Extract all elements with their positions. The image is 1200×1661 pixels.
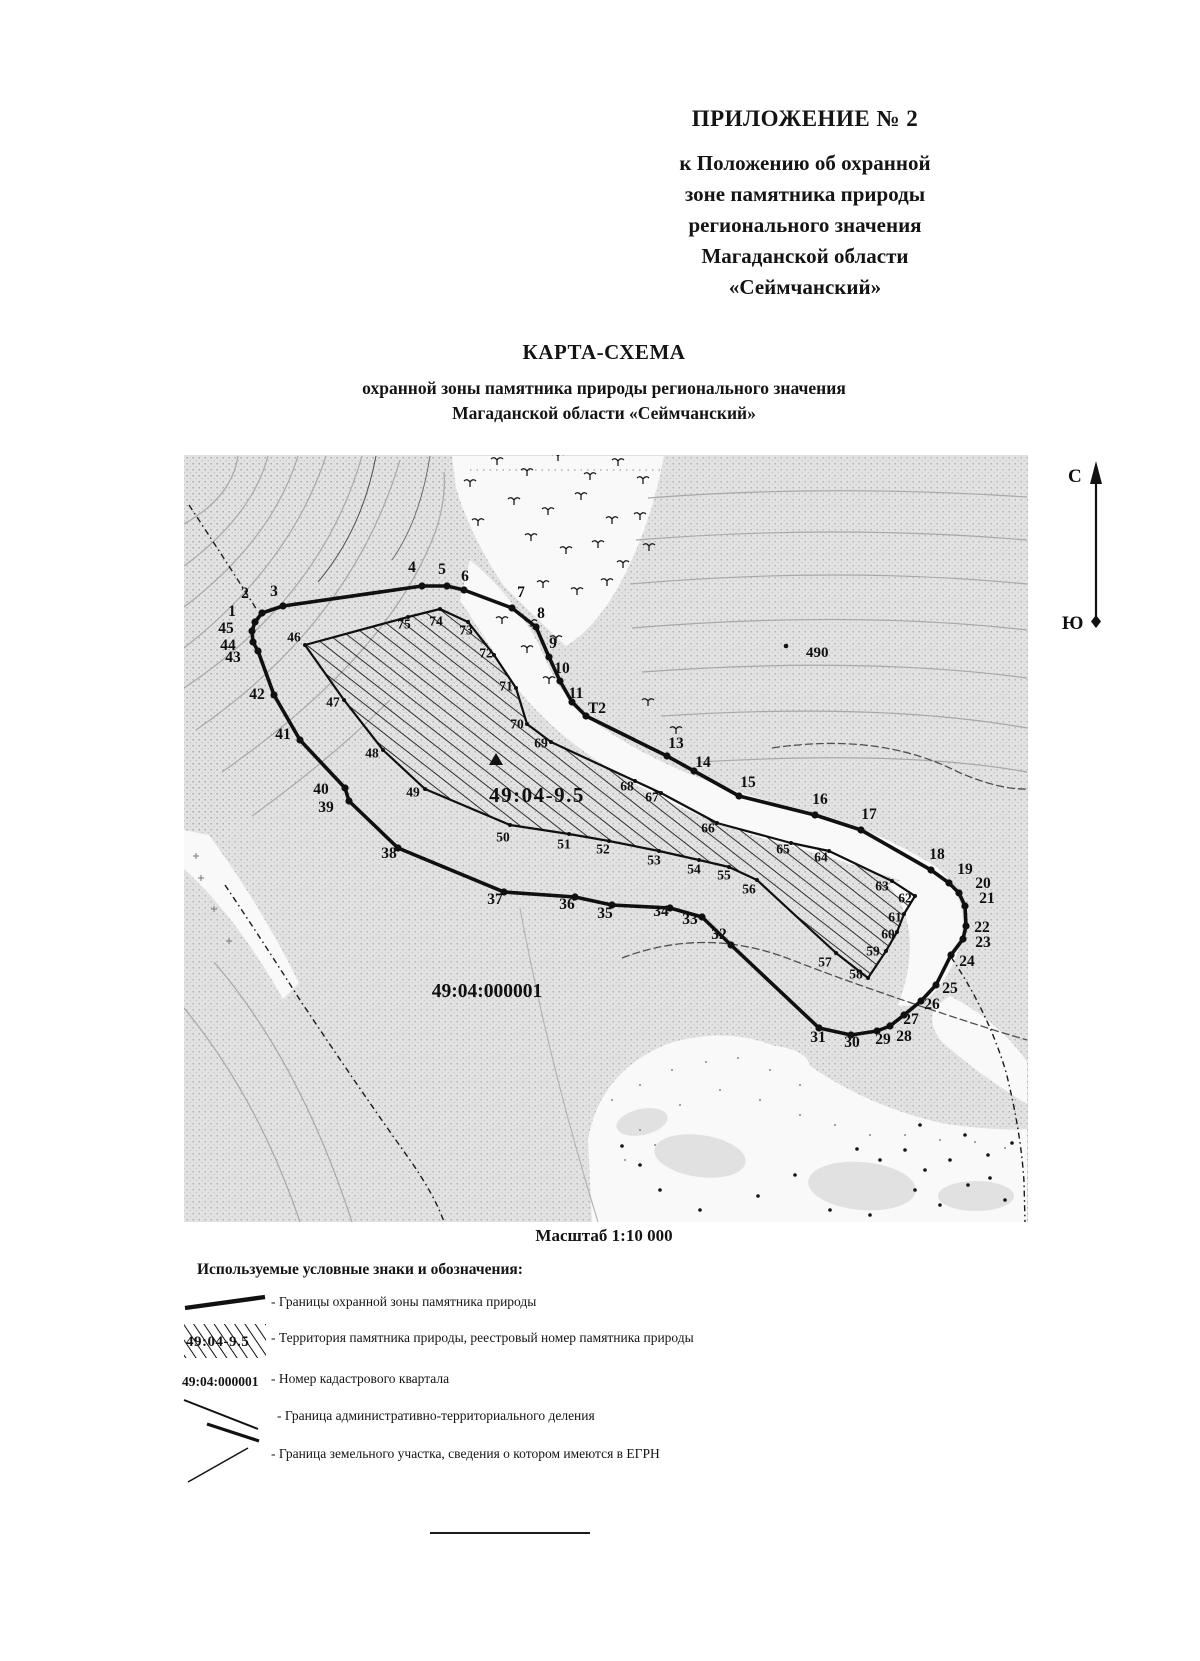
- boundary-vertex-dot: [735, 792, 742, 799]
- boundary-point-label: 11: [569, 685, 584, 702]
- territory-vertex-dot: [381, 748, 385, 752]
- boundary-vertex-dot: [947, 951, 954, 958]
- territory-point-label: 52: [596, 842, 610, 857]
- territory-point-label: 62: [898, 891, 912, 906]
- boundary-vertex-dot: [857, 826, 864, 833]
- territory-point-label: 70: [510, 717, 524, 732]
- territory-vertex-dot: [884, 949, 888, 953]
- territory-vertex-dot: [303, 643, 307, 647]
- boundary-point-label: 41: [275, 726, 291, 743]
- footer-rule: [430, 1532, 590, 1534]
- boundary-point-label: 25: [942, 980, 958, 997]
- boundary-vertex-dot: [251, 618, 258, 625]
- boundary-vertex-dot: [254, 647, 261, 654]
- south-diamond-icon: [1091, 615, 1101, 628]
- boundary-point-label: 28: [896, 1028, 912, 1045]
- scale-label: Масштаб 1:10 000: [180, 1226, 1028, 1246]
- legend-item-label: - Границы охранной зоны памятника природ…: [271, 1294, 536, 1310]
- legend-heading: Используемые условные знаки и обозначени…: [197, 1261, 523, 1279]
- boundary-vertex-dot: [955, 889, 962, 896]
- boundary-point-label: 40: [313, 781, 329, 798]
- territory-point-label: 56: [742, 882, 756, 897]
- boundary-point-label: 1: [228, 603, 236, 620]
- boundary-point-label: 37: [487, 891, 503, 908]
- boundary-vertex-dot: [248, 627, 255, 634]
- boundary-vertex-dot: [556, 677, 563, 684]
- boundary-point-label: 30: [844, 1034, 860, 1051]
- territory-point-label: 72: [479, 646, 493, 661]
- territory-point-label: 66: [701, 821, 715, 836]
- boundary-point-label: 35: [597, 905, 613, 922]
- territory-point-label: 47: [326, 695, 340, 710]
- north-label: С: [1068, 466, 1082, 487]
- legend-item-label: - Граница административно-территориально…: [277, 1408, 595, 1424]
- territory-point-label: 53: [647, 853, 661, 868]
- territory-vertex-dot: [438, 607, 442, 611]
- boundary-vertex-dot: [545, 653, 552, 660]
- territory-vertex-dot: [890, 879, 894, 883]
- territory-point-label: 61: [888, 910, 902, 925]
- territory-vertex-dot: [715, 821, 719, 825]
- boundary-point-label: 29: [875, 1031, 891, 1048]
- boundary-vertex-dot: [460, 586, 467, 593]
- territory-point-label: 65: [776, 842, 790, 857]
- boundary-vertex-dot: [296, 736, 303, 743]
- boundary-point-label: 38: [381, 845, 397, 862]
- boundary-vertex-dot: [962, 922, 969, 929]
- boundary-point-label: 4: [408, 559, 416, 576]
- boundary-vertex-dot: [249, 638, 256, 645]
- elevation-label: 490: [806, 645, 829, 661]
- territory-point-label: 63: [875, 879, 889, 894]
- territory-point-label: 60: [881, 927, 895, 942]
- boundary-point-label: 13: [668, 735, 684, 752]
- legend-symbol-protection-zone-line: [182, 1291, 270, 1313]
- territory-point-label: 71: [499, 679, 513, 694]
- territory-point-label: 69: [534, 736, 548, 751]
- territory-point-label: 58: [849, 967, 863, 982]
- territory-vertex-dot: [902, 912, 906, 916]
- territory-point-label: 59: [866, 944, 880, 959]
- boundary-point-label: 7: [517, 584, 525, 601]
- boundary-point-label: 5: [438, 561, 446, 578]
- boundary-vertex-dot: [811, 811, 818, 818]
- territory-vertex-dot: [834, 951, 838, 955]
- boundary-point-label: 19: [957, 861, 973, 878]
- boundary-point-label: 36: [559, 896, 575, 913]
- boundary-point-label: 6: [461, 568, 469, 585]
- territory-point-label: 74: [429, 614, 443, 629]
- boundary-point-label: 18: [929, 846, 945, 863]
- boundary-point-label: 31: [810, 1029, 826, 1046]
- boundary-point-label: 3: [270, 583, 278, 600]
- boundary-vertex-dot: [345, 797, 352, 804]
- boundary-vertex-dot: [698, 913, 705, 920]
- boundary-point-label: 14: [695, 754, 711, 771]
- boundary-vertex-dot: [532, 623, 539, 630]
- territory-vertex-dot: [567, 832, 571, 836]
- boundary-point-label: 26: [924, 996, 940, 1013]
- boundary-point-label: 44: [220, 637, 236, 654]
- territory-point-label: 48: [365, 746, 379, 761]
- boundary-point-label: 27: [903, 1011, 919, 1028]
- territory-point-label: 68: [620, 779, 634, 794]
- boundary-vertex-dot: [959, 935, 966, 942]
- territory-vertex-dot: [342, 698, 346, 702]
- south-label: Ю: [1062, 613, 1083, 634]
- boundary-point-label: 2: [241, 585, 249, 602]
- territory-point-label: 49: [406, 785, 420, 800]
- territory-point-label: 57: [818, 955, 832, 970]
- boundary-vertex-dot: [727, 941, 734, 948]
- boundary-vertex-dot: [508, 604, 515, 611]
- elevation-dot: [784, 644, 789, 649]
- boundary-point-label: 39: [318, 799, 334, 816]
- territory-vertex-dot: [525, 722, 529, 726]
- boundary-vertex-dot: [663, 752, 670, 759]
- boundary-point-label: Т2: [588, 700, 606, 717]
- boundary-vertex-dot: [270, 691, 277, 698]
- territory-vertex-dot: [659, 791, 663, 795]
- boundary-point-label: 8: [537, 605, 545, 622]
- legend-item-label: - Граница земельного участка, сведения о…: [271, 1446, 660, 1462]
- boundary-point-label: 21: [979, 890, 995, 907]
- boundary-vertex-dot: [886, 1022, 893, 1029]
- boundary-point-label: 33: [682, 911, 698, 928]
- registry-number-label: 49:04-9.5: [489, 783, 585, 807]
- north-arrow: С Ю: [1062, 461, 1102, 634]
- map-canvas: 4647484950515253545556575859606162636465…: [0, 0, 1200, 1661]
- territory-point-label: 64: [814, 850, 828, 865]
- boundary-point-label: 34: [653, 903, 669, 920]
- territory-vertex-dot: [866, 976, 870, 980]
- boundary-vertex-dot: [341, 784, 348, 791]
- legend-item-label: - Номер кадастрового квартала: [271, 1371, 449, 1387]
- legend-registry-number: 49:04-9.5: [186, 1334, 249, 1351]
- boundary-vertex-dot: [932, 981, 939, 988]
- boundary-vertex-dot: [945, 879, 952, 886]
- territory-vertex-dot: [514, 686, 518, 690]
- boundary-point-label: 17: [861, 806, 877, 823]
- territory-point-label: 51: [557, 837, 571, 852]
- cadastral-number-label: 49:04:000001: [432, 981, 543, 1002]
- boundary-vertex-dot: [961, 902, 968, 909]
- boundary-point-label: 45: [218, 620, 234, 637]
- boundary-point-label: 42: [249, 686, 265, 703]
- boundary-vertex-dot: [258, 609, 265, 616]
- territory-vertex-dot: [895, 930, 899, 934]
- territory-vertex-dot: [423, 787, 427, 791]
- territory-vertex-dot: [549, 740, 553, 744]
- territory-point-label: 67: [645, 790, 659, 805]
- boundary-point-label: 10: [554, 660, 570, 677]
- boundary-point-label: 24: [959, 953, 975, 970]
- boundary-vertex-dot: [927, 866, 934, 873]
- territory-point-label: 54: [687, 862, 701, 877]
- legend-symbol-parcel-boundary: [182, 1420, 264, 1488]
- territory-point-label: 73: [459, 623, 473, 638]
- boundary-vertex-dot: [279, 602, 286, 609]
- territory-point-label: 46: [287, 630, 301, 645]
- territory-vertex-dot: [508, 823, 512, 827]
- boundary-point-label: 32: [711, 926, 727, 943]
- document-page: ПРИЛОЖЕНИЕ № 2 к Положению об охранной з…: [0, 0, 1200, 1661]
- boundary-vertex-dot: [443, 582, 450, 589]
- legend-cadastral-number: 49:04:000001: [182, 1374, 259, 1390]
- territory-point-label: 75: [397, 617, 411, 632]
- boundary-point-label: 16: [812, 791, 828, 808]
- north-arrowhead-icon: [1090, 461, 1102, 484]
- boundary-point-label: 23: [975, 934, 991, 951]
- boundary-point-label: 15: [740, 774, 756, 791]
- territory-vertex-dot: [913, 894, 917, 898]
- territory-point-label: 55: [717, 868, 731, 883]
- boundary-point-label: 9: [549, 635, 557, 652]
- territory-point-label: 50: [496, 830, 510, 845]
- legend-item-label: - Территория памятника природы, реестров…: [271, 1330, 694, 1346]
- boundary-vertex-dot: [418, 582, 425, 589]
- map-terrain: 4647484950515253545556575859606162636465…: [184, 454, 1028, 1222]
